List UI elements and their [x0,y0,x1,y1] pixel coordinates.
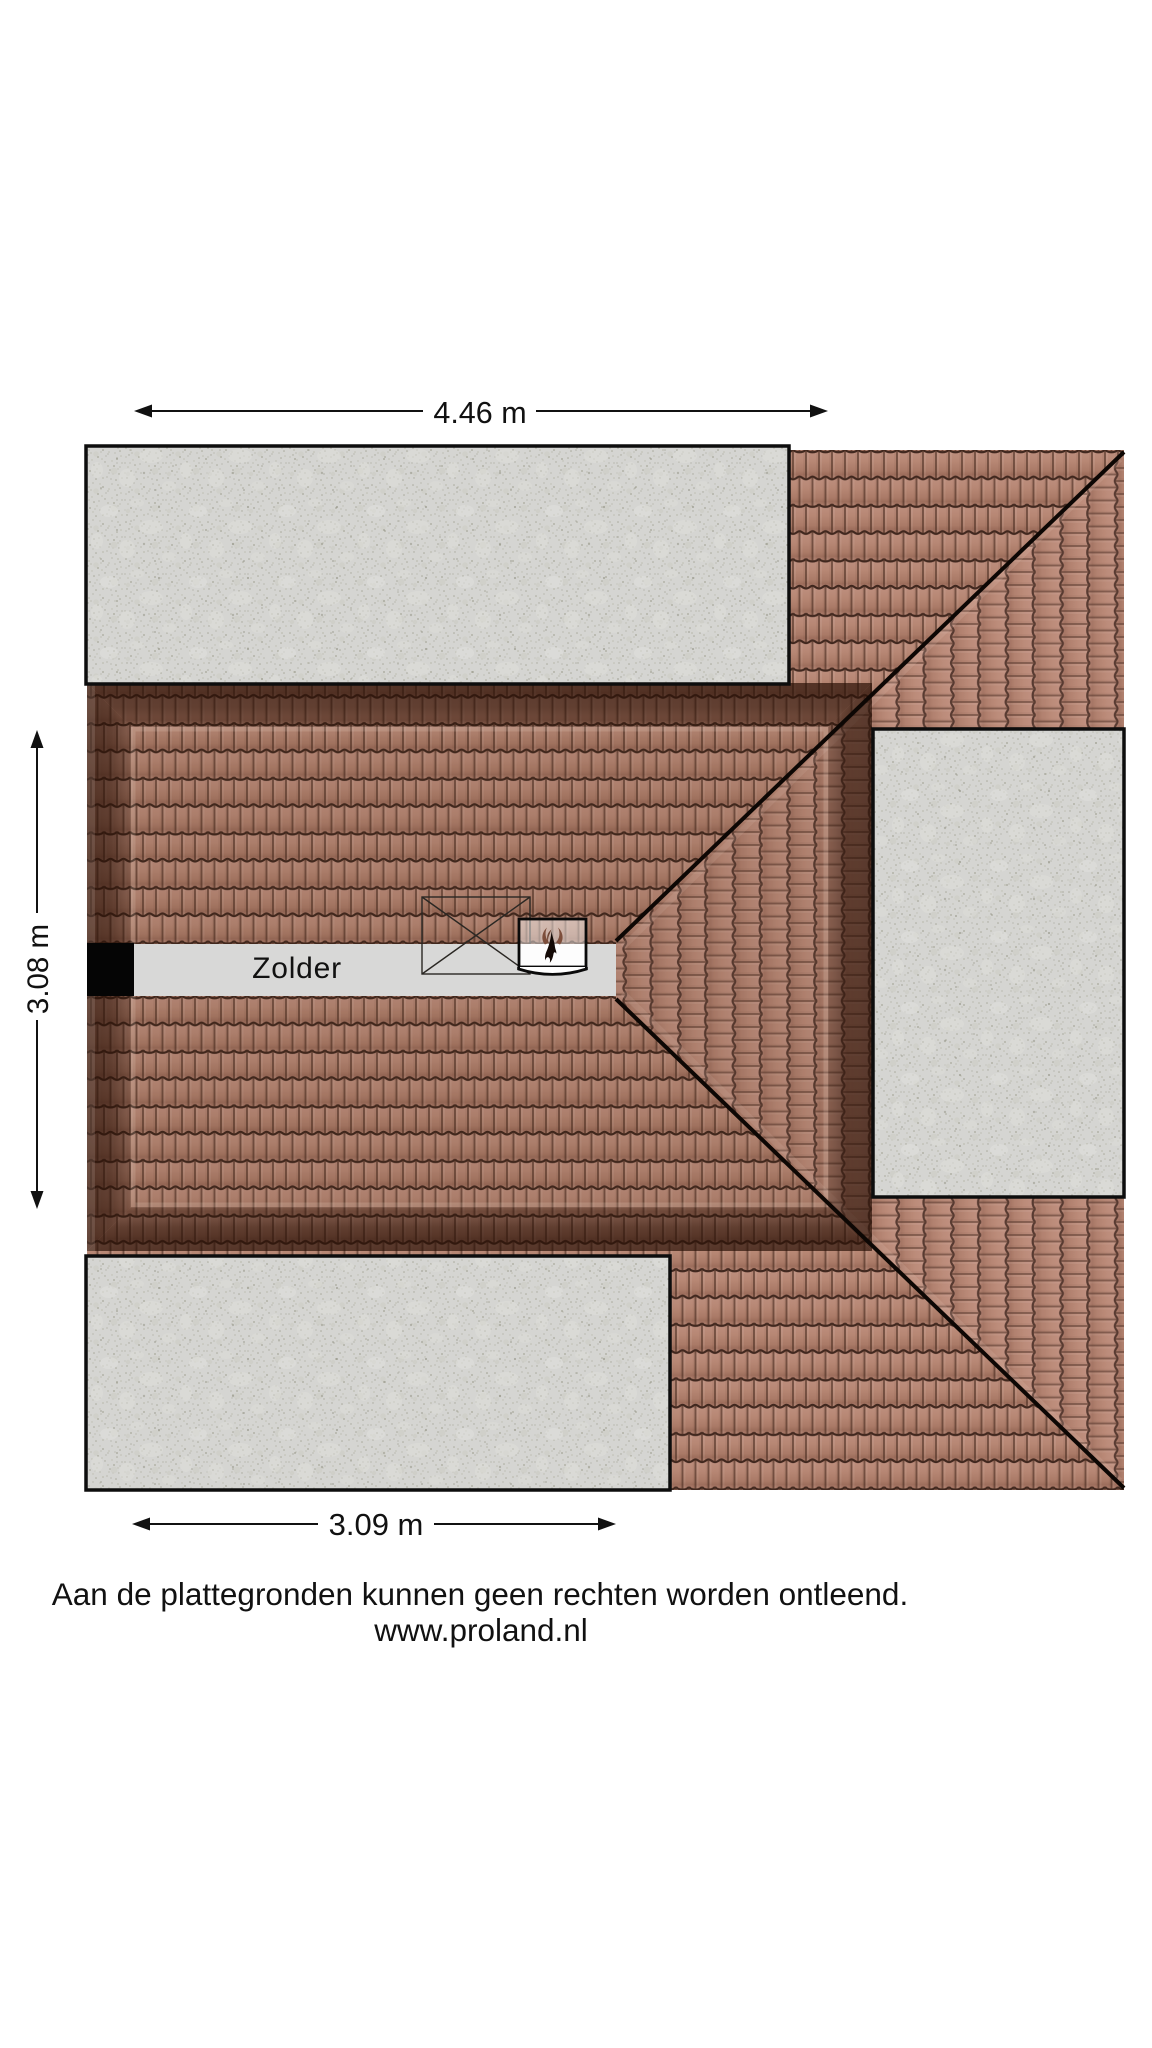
svg-text:www.proland.nl: www.proland.nl [373,1612,588,1648]
svg-text:Aan de plattegronden kunnen ge: Aan de plattegronden kunnen geen rechten… [52,1576,908,1612]
svg-text:3.08 m: 3.08 m [22,924,55,1014]
svg-text:Zolder: Zolder [252,952,342,985]
svg-text:3.09 m: 3.09 m [329,1507,424,1542]
svg-text:4.46 m: 4.46 m [433,396,526,430]
